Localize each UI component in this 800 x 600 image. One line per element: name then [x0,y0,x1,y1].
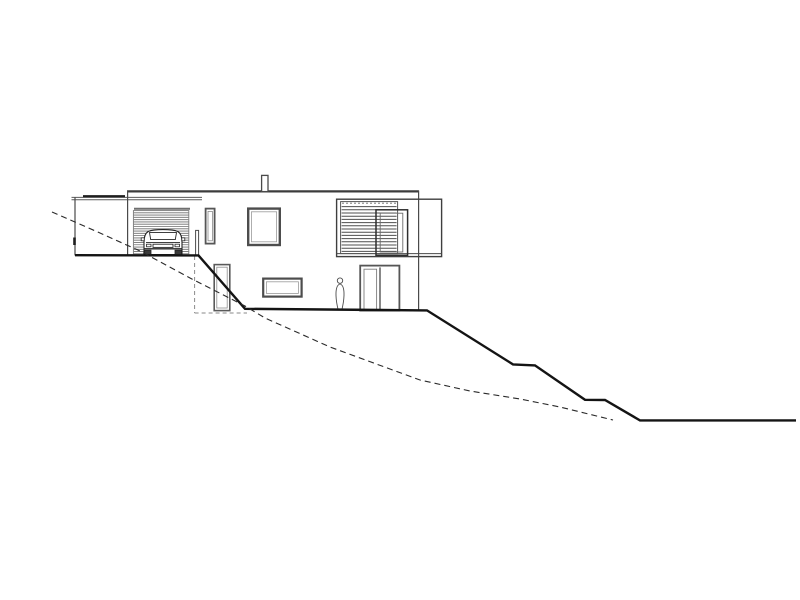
garage-corner-post [196,230,199,255]
window-narrow-frame [206,209,215,244]
terrain-existing-grade [52,212,613,420]
terrain-proposed-grade [75,255,796,420]
drawing-canvas [0,0,800,600]
chimney [262,175,268,191]
car-mirror-left [141,238,144,241]
car-headlight-left [147,244,152,247]
car-headlight-right [175,244,180,247]
person-body [336,284,344,310]
window-square-frame [248,209,280,245]
basement-window-frame [263,279,301,297]
elevation-drawing-svg [0,0,800,600]
car-windshield [150,233,177,240]
car-wheel-right [175,250,182,255]
car-mirror-right [182,238,185,241]
car-grille [153,244,173,247]
person-head [337,278,342,283]
